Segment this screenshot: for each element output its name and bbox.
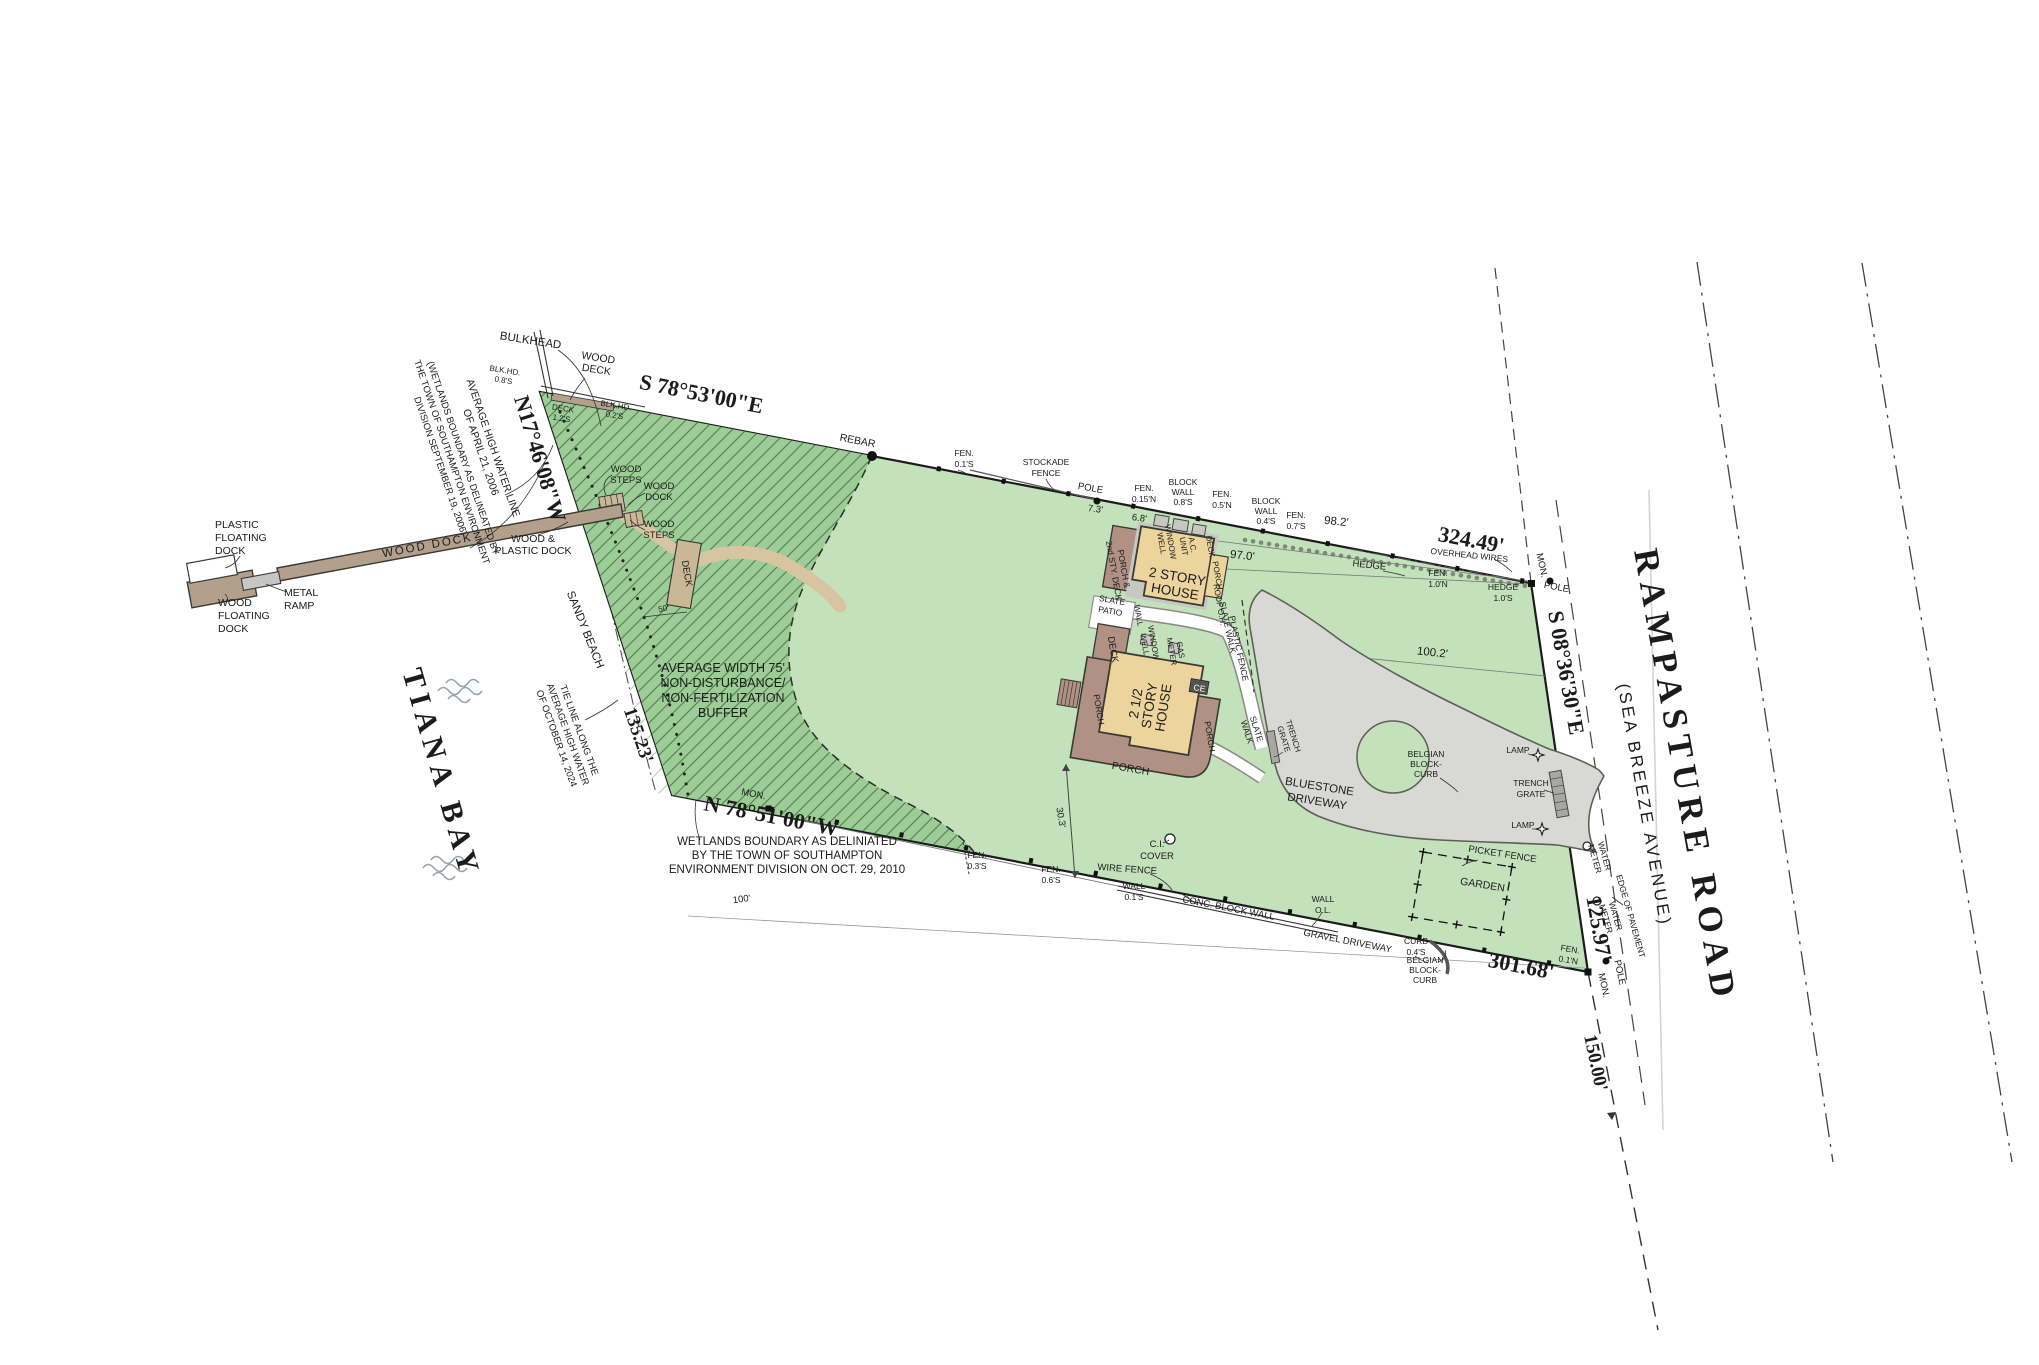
- label-line: FEN.: [967, 850, 986, 860]
- label-line: DOCK: [218, 623, 248, 635]
- label-line: WALL: [1172, 487, 1195, 497]
- label-line: COVER: [1140, 851, 1174, 862]
- fence-offset-label: FEN. 0.1'N: [1558, 942, 1581, 966]
- tie-100-label: 100': [732, 893, 751, 906]
- label-line: STEPS: [643, 530, 674, 541]
- label-line: 0.1'S: [954, 459, 973, 469]
- wood-floating-dock-label: WOOD FLOATING DOCK: [218, 597, 270, 635]
- fence-offset-label: FEN. 0.1'S: [954, 448, 974, 469]
- label-line: 0.8'S: [1173, 497, 1192, 507]
- wood-dock-small-label: WOOD DOCK: [644, 481, 675, 503]
- dimension-arrow: [1607, 1112, 1616, 1120]
- right-of-way-line-east: [1862, 263, 2012, 1162]
- stockade-fence-label: STOCKADE FENCE: [1023, 457, 1070, 478]
- waterbody-name: TIANA BAY: [395, 664, 487, 882]
- label-line: 0.4'S: [1256, 516, 1275, 526]
- label-line: 0.5'N: [1212, 500, 1232, 510]
- label-line: HEDGE: [1488, 582, 1519, 592]
- pole-label: POLE: [1077, 481, 1104, 496]
- label-line: WALL: [1123, 881, 1146, 891]
- entry-steps: [1057, 679, 1081, 708]
- label-line: FLOATING: [215, 532, 267, 544]
- label-line: DOCK: [215, 545, 245, 557]
- right-of-way-line-west: [1697, 262, 1833, 1162]
- road-frontage-dist: 150.00': [1579, 1033, 1612, 1094]
- dim-98-2: 98.2': [1323, 515, 1349, 530]
- label-line: CURB: [1404, 936, 1428, 946]
- label-line: FEN.: [1134, 483, 1153, 493]
- monument-label: MON.: [1533, 552, 1549, 579]
- trench-grate-label: TRENCH GRATE: [1513, 778, 1548, 799]
- label-line: WALL: [1255, 506, 1278, 516]
- label-line: BLOCK: [1252, 496, 1281, 506]
- wood-dock-label: WOOD DOCK: [381, 532, 473, 560]
- label-line: CURB: [1413, 975, 1437, 985]
- label-line: PLASTIC DOCK: [494, 545, 571, 557]
- wave-icon: [438, 680, 482, 703]
- note-line: BUFFER: [698, 706, 748, 720]
- lot-line-extension-south: [1588, 972, 1658, 1330]
- note-tie-line-2024: TIE LINE ALONG THE AVERAGE HIGH WATER OF…: [533, 678, 603, 791]
- lamp-label: LAMP: [1506, 745, 1529, 755]
- dim-97-0: 97.0': [1229, 549, 1255, 564]
- deck-box: [1192, 524, 1206, 536]
- block-wall-offset-label: BLOCK WALL 0.8'S: [1169, 477, 1198, 507]
- wood-steps-label: WOOD STEPS: [610, 464, 641, 486]
- label-line: 0.8'S: [494, 375, 513, 387]
- note-line: ENVIRONMENT DIVISION ON OCT. 29, 2010: [669, 864, 905, 876]
- label-line: O.L.: [1315, 905, 1331, 915]
- monument-icon: [1528, 580, 1535, 587]
- wood-deck-label: WOOD DECK: [579, 350, 617, 379]
- curb-offset-label: CURB 0.4'S: [1404, 936, 1428, 957]
- water-meter-label: WATER METER: [1586, 840, 1613, 874]
- label-line: WOOD: [644, 481, 675, 492]
- note-line: AVERAGE WIDTH 75': [661, 661, 785, 675]
- label-line: WOOD: [611, 464, 642, 475]
- label-line: BLOCK-: [1409, 965, 1441, 975]
- dim-7-3: 7.3': [1087, 503, 1104, 516]
- note-wetlands-2010: WETLANDS BOUNDARY AS DELINIATED BY THE T…: [669, 836, 905, 876]
- lamp-label: LAMP: [1511, 820, 1534, 830]
- note-line: BY THE TOWN OF SOUTHAMPTON: [692, 850, 883, 862]
- label-line: PLASTIC: [215, 519, 259, 531]
- label-line: FENCE: [1032, 468, 1061, 478]
- label-line: BELGIAN: [1408, 749, 1445, 759]
- fence-offset-label: FEN. 0.15'N: [1132, 483, 1156, 504]
- label-line: WALL: [1312, 894, 1335, 904]
- label-line: 0.15'N: [1132, 494, 1156, 504]
- pole-label: POLE: [1611, 959, 1627, 986]
- sandy-beach-label: SANDY BEACH: [564, 590, 606, 671]
- label-line: BELGIAN: [1407, 955, 1444, 965]
- label-line: FEN.: [1041, 864, 1060, 874]
- bulkhead-label: BULKHEAD: [499, 330, 562, 352]
- label-line: GRATE: [1517, 789, 1546, 799]
- ci-cover-icon: [1165, 834, 1175, 844]
- label-line: FEN.: [1286, 510, 1305, 520]
- ac-unit-box: [1172, 519, 1189, 532]
- note-line: WETLANDS BOUNDARY AS DELINIATED: [677, 836, 897, 848]
- label-line: WOOD &: [511, 533, 555, 545]
- label-line: RAMP: [284, 600, 314, 612]
- label-line: STOCKADE: [1023, 457, 1070, 467]
- fence-offset-label: FEN. 1.0'N: [1428, 568, 1448, 589]
- label-line: BLOCK-: [1410, 759, 1442, 769]
- fence-offset-label: FEN. 0.5'N: [1212, 489, 1232, 510]
- label-line: WOOD: [644, 519, 675, 530]
- bearing-north: S 78°53'00"E: [637, 369, 765, 419]
- rebar-label: REBAR: [839, 432, 877, 451]
- metal-ramp-label: METAL RAMP: [284, 587, 318, 612]
- belgian-block-label: BELGIAN BLOCK- CURB: [1407, 955, 1444, 985]
- label-line: STEPS: [610, 475, 641, 486]
- blkhd-offset-label: BLK.HD. 0.8'S: [487, 364, 521, 388]
- ce-label: CE: [1193, 682, 1207, 694]
- fence-offset-label: FEN. 0.7'S: [1286, 510, 1306, 531]
- label-line: C.I.: [1150, 839, 1165, 850]
- monument-icon: [1585, 969, 1592, 976]
- label-line: FEN.: [1212, 489, 1231, 499]
- label-line: TRENCH: [1513, 778, 1548, 788]
- monument-label: MON.: [1595, 972, 1611, 999]
- fence-offset-label: FEN. 0.3'S: [967, 850, 987, 871]
- label-line: 1.0'S: [1493, 593, 1512, 603]
- note-line: NON-FERTILIZATION: [661, 691, 784, 705]
- wall-offset-label: WALL 0.1'S: [1123, 881, 1146, 902]
- slate-patio-label: SLATE PATIO: [1097, 593, 1127, 618]
- label-line: 0.3'S: [967, 861, 986, 871]
- wood-steps-label: WOOD STEPS: [643, 519, 674, 541]
- dim-6-8: 6.8': [1131, 512, 1148, 525]
- fence-offset-label: FEN. 0.6'S: [1041, 864, 1061, 885]
- block-wall-offset-label: BLOCK WALL 0.4'S: [1252, 496, 1281, 526]
- label-line: FEN.: [1428, 568, 1447, 578]
- label-line: WOOD: [218, 597, 252, 609]
- label-line: 0.6'S: [1041, 875, 1060, 885]
- label-line: FLOATING: [218, 610, 270, 622]
- pole-label: POLE: [1543, 580, 1570, 595]
- label-line: METAL: [284, 587, 318, 599]
- label-line: 0.7'S: [1286, 521, 1305, 531]
- plastic-floating-dock-label: PLASTIC FLOATING DOCK: [215, 519, 267, 557]
- label-line: BLOCK: [1169, 477, 1198, 487]
- label-line: 0.1'S: [1124, 892, 1143, 902]
- label-line: CURB: [1414, 769, 1438, 779]
- label-line: FEN.: [954, 448, 973, 458]
- label-line: 1.0'N: [1428, 579, 1448, 589]
- rebar-icon: [867, 451, 877, 461]
- note-line: NON-DISTURBANCE/: [660, 676, 786, 690]
- wood-steps: [624, 511, 644, 528]
- survey-site-plan: TIANA BAY RAMPASTURE ROAD (SEA BREEZE AV…: [0, 0, 2039, 1365]
- label-line: DOCK: [645, 492, 673, 503]
